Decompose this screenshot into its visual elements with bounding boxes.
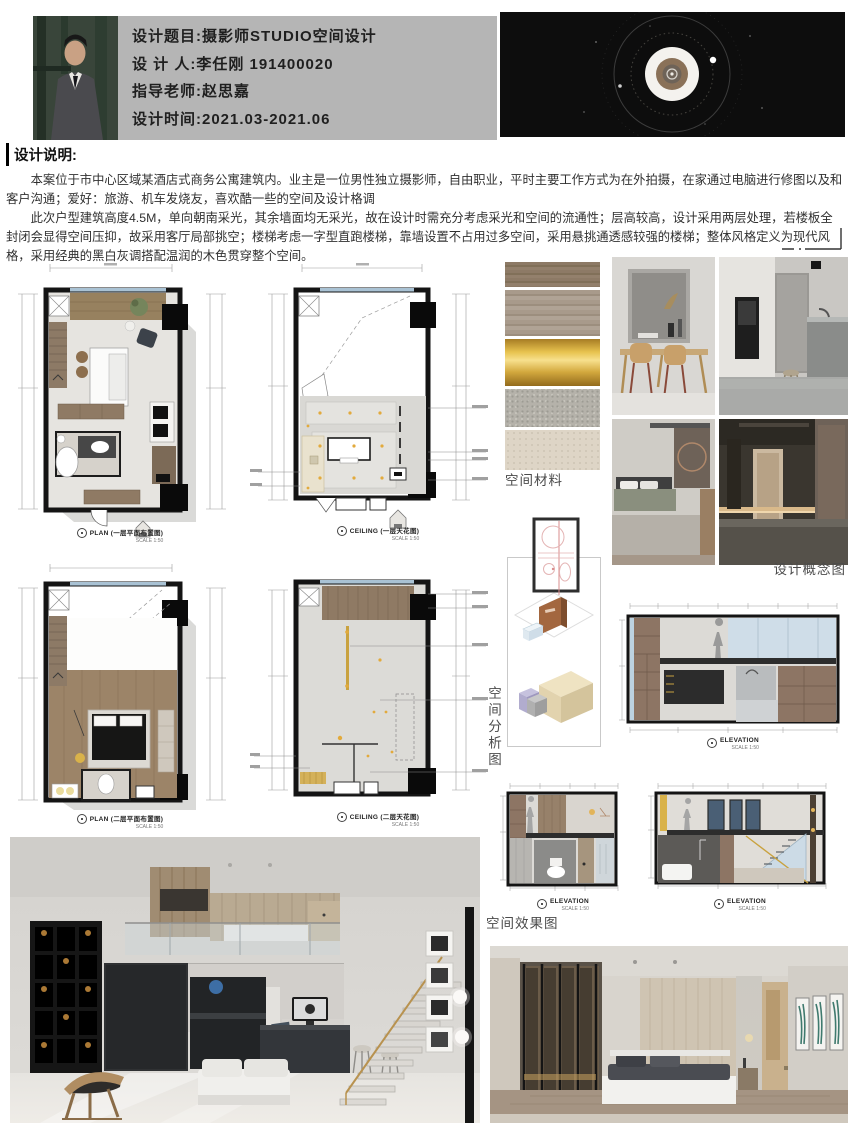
material-swatch-dark-wood [505, 262, 600, 287]
bubble-diagram [532, 517, 580, 595]
ceiling-plan-level1-drawing [250, 256, 490, 556]
designer-photo [33, 16, 118, 140]
floor-plan-level1-drawing [12, 256, 240, 556]
plan1-caption: PLAN (一层平面布置图) SCALE 1:50 [40, 527, 200, 544]
ceiling1-caption: CEILING (一层天花图) SCALE 1:50 [298, 525, 458, 542]
drawing-symbol-icon [707, 738, 717, 748]
design-presentation-board: 设计题目:摄影师STUDIO空间设计 设 计 人:李任刚 191400020 指… [0, 0, 848, 1131]
designer-portrait-image [33, 16, 118, 140]
elevation-main-title: ELEVATION [720, 737, 759, 744]
elevation-b [648, 780, 832, 892]
materials-label: 空间材料 [505, 469, 563, 489]
advisor-name: 指导老师:赵思嘉 [132, 84, 497, 99]
elevation-b-title: ELEVATION [727, 898, 766, 905]
render-living-room [10, 837, 480, 1123]
drawing-symbol-icon [337, 526, 347, 536]
bubble-diagram-drawing [532, 517, 580, 595]
ceiling2-scale: SCALE 1:50 [350, 822, 420, 828]
elevation-b-drawing [648, 780, 832, 892]
concept-label: 设计概念图 [768, 558, 846, 578]
concept-photo-dining [612, 257, 715, 415]
drawing-symbol-icon [337, 812, 347, 822]
ceiling1-title: CEILING (一层天花图) [350, 525, 420, 535]
floor-plan-level2-drawing [12, 560, 240, 812]
ceiling-plan-level2 [250, 560, 490, 810]
designer-name: 设 计 人:李任刚 191400020 [132, 57, 497, 72]
plan2-title: PLAN (二层平面布置图) [90, 813, 164, 823]
project-title: 设计题目:摄影师STUDIO空间设计 [132, 29, 497, 44]
title-block: 设计题目:摄影师STUDIO空间设计 设 计 人:李任刚 191400020 指… [118, 16, 497, 140]
analysis-label: 空间分析图 [483, 686, 503, 769]
renders-label: 空间效果图 [486, 912, 559, 932]
design-period: 设计时间:2021.03-2021.06 [132, 112, 497, 127]
corner-bracket-mark [780, 226, 844, 254]
massing-diagrams-drawing [509, 585, 599, 743]
render-bedroom [490, 946, 848, 1123]
concept-photo-kitchen [719, 257, 848, 415]
elevation-a-title: ELEVATION [550, 898, 589, 905]
ceiling-plan-level2-drawing [250, 560, 490, 810]
floor-plan-level2 [12, 560, 240, 812]
ceiling1-scale: SCALE 1:50 [350, 536, 420, 542]
elevation-a-drawing [500, 780, 624, 894]
drawing-symbol-icon [537, 899, 547, 909]
elevation-main-caption: ELEVATION SCALE 1:50 [668, 737, 798, 751]
plan1-scale: SCALE 1:50 [90, 538, 164, 544]
description-body: 本案位于市中心区域某酒店式商务公寓建筑内。业主是一位男性独立摄影师，自由职业，平… [6, 171, 844, 266]
elevation-a-caption: ELEVATION SCALE 1:50 [518, 898, 608, 912]
lens-orbit-icon [500, 12, 845, 137]
ceiling-plan-level1 [250, 256, 490, 556]
material-swatch-terrazzo [505, 389, 600, 427]
drawing-symbol-icon [77, 814, 87, 824]
design-description: 设计说明: 本案位于市中心区域某酒店式商务公寓建筑内。业主是一位男性独立摄影师，… [6, 143, 844, 266]
material-swatches [505, 262, 600, 473]
concept-photo-corridor [719, 419, 848, 565]
massing-diagrams [509, 585, 599, 743]
material-swatch-gold [505, 339, 600, 386]
elevation-main-drawing [618, 596, 846, 748]
plan2-caption: PLAN (二层平面布置图) SCALE 1:50 [40, 813, 200, 830]
elevation-a [500, 780, 624, 894]
elevation-b-caption: ELEVATION SCALE 1:50 [690, 898, 790, 912]
camera-lens-graphic [500, 12, 845, 137]
concept-photo-grid [612, 257, 848, 565]
elevation-main-scale: SCALE 1:50 [720, 745, 759, 751]
description-paragraph-1: 本案位于市中心区域某酒店式商务公寓建筑内。业主是一位男性独立摄影师，自由职业，平… [6, 171, 844, 209]
ceiling2-title: CEILING (二层天花图) [350, 811, 420, 821]
ceiling2-caption: CEILING (二层天花图) SCALE 1:50 [298, 811, 458, 828]
drawing-symbol-icon [714, 899, 724, 909]
plan1-title: PLAN (一层平面布置图) [90, 527, 164, 537]
plan2-scale: SCALE 1:50 [90, 824, 164, 830]
elevation-main [618, 596, 846, 748]
description-heading: 设计说明: [6, 143, 77, 166]
elevation-b-scale: SCALE 1:50 [727, 906, 766, 912]
material-swatch-beige [505, 430, 600, 470]
render-bedroom-image [490, 946, 848, 1123]
drawing-symbol-icon [77, 528, 87, 538]
concept-photo-bedroom [612, 419, 715, 565]
floor-plan-level1 [12, 256, 240, 556]
render-living-room-image [10, 837, 480, 1123]
material-swatch-light-wood [505, 290, 600, 336]
